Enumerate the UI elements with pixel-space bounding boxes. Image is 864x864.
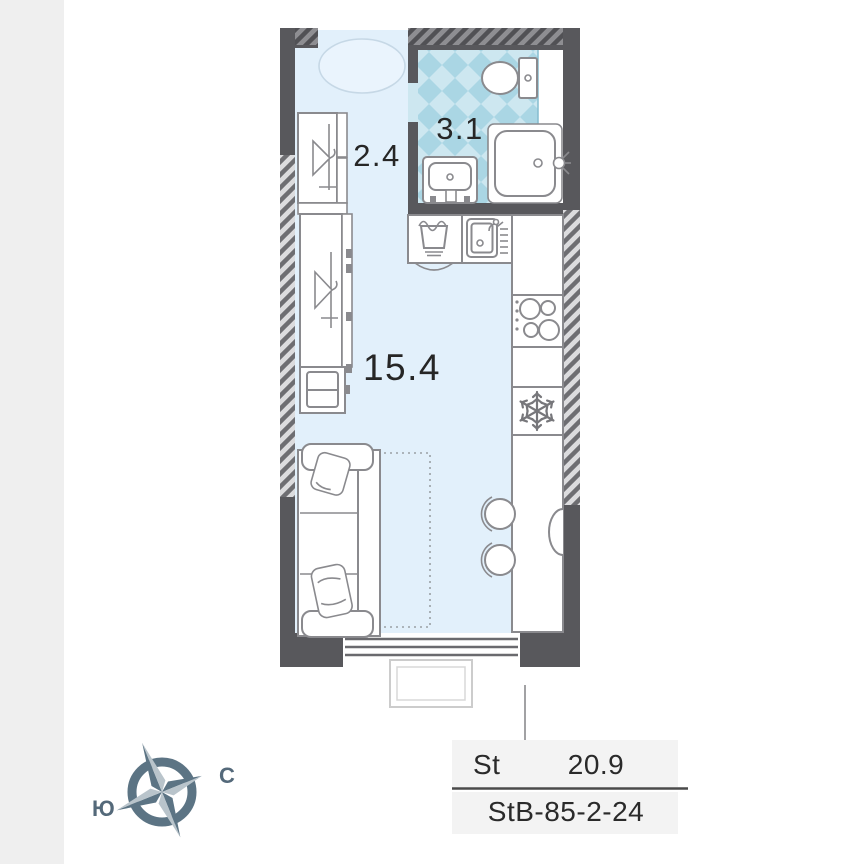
living-area-label: 15.4 xyxy=(363,347,441,388)
laundry-box xyxy=(408,215,462,270)
hall-wardrobe xyxy=(298,113,347,214)
hall-area-label: 2.4 xyxy=(353,138,401,173)
bathroom-door-opening xyxy=(408,83,418,122)
wall-bathroom-divider-lower xyxy=(408,122,418,203)
wall-bathroom-divider-upper xyxy=(408,45,418,83)
wall-left-lower xyxy=(280,497,295,667)
drawer-cabinet xyxy=(300,367,350,413)
wall-left-upper xyxy=(280,28,295,155)
kitchen-sink-box xyxy=(462,215,512,263)
unit-code: StB-85-2-24 xyxy=(488,796,644,827)
cooktop xyxy=(512,295,563,347)
shower xyxy=(488,124,571,203)
wall-bottom-left xyxy=(295,633,343,667)
toilet xyxy=(482,58,537,98)
wall-right-upper xyxy=(563,28,580,210)
window-zone xyxy=(343,633,520,707)
wall-right-hatched xyxy=(563,210,580,505)
total-area-value: 20.9 xyxy=(568,749,625,780)
bathroom-area-label: 3.1 xyxy=(436,111,484,146)
compass-rose: С Ю xyxy=(92,727,235,856)
fridge xyxy=(512,387,563,435)
unit-type-label: St xyxy=(473,749,500,780)
stool xyxy=(485,545,515,575)
wall-top xyxy=(408,28,580,45)
compass-south-label: Ю xyxy=(92,796,115,821)
stool xyxy=(485,499,515,529)
wall-left-hatched xyxy=(280,155,295,497)
wall-bathroom-bottom xyxy=(408,203,563,215)
sofa xyxy=(298,444,380,637)
gallery-edge-strip xyxy=(0,0,64,864)
rug xyxy=(319,39,405,93)
summary-table: St 20.9 StB-85-2-24 xyxy=(452,685,688,834)
wall-bottom-right xyxy=(520,633,580,667)
washbasin xyxy=(423,157,477,203)
living-wardrobe xyxy=(300,214,352,373)
compass-star xyxy=(97,727,221,856)
compass-north-label: С xyxy=(219,763,235,788)
floor-plan-page: 2.4 3.1 15.4 St 20.9 StB-85-2-24 xyxy=(0,0,864,864)
floor-plan-svg: 2.4 3.1 15.4 St 20.9 StB-85-2-24 xyxy=(0,0,864,864)
